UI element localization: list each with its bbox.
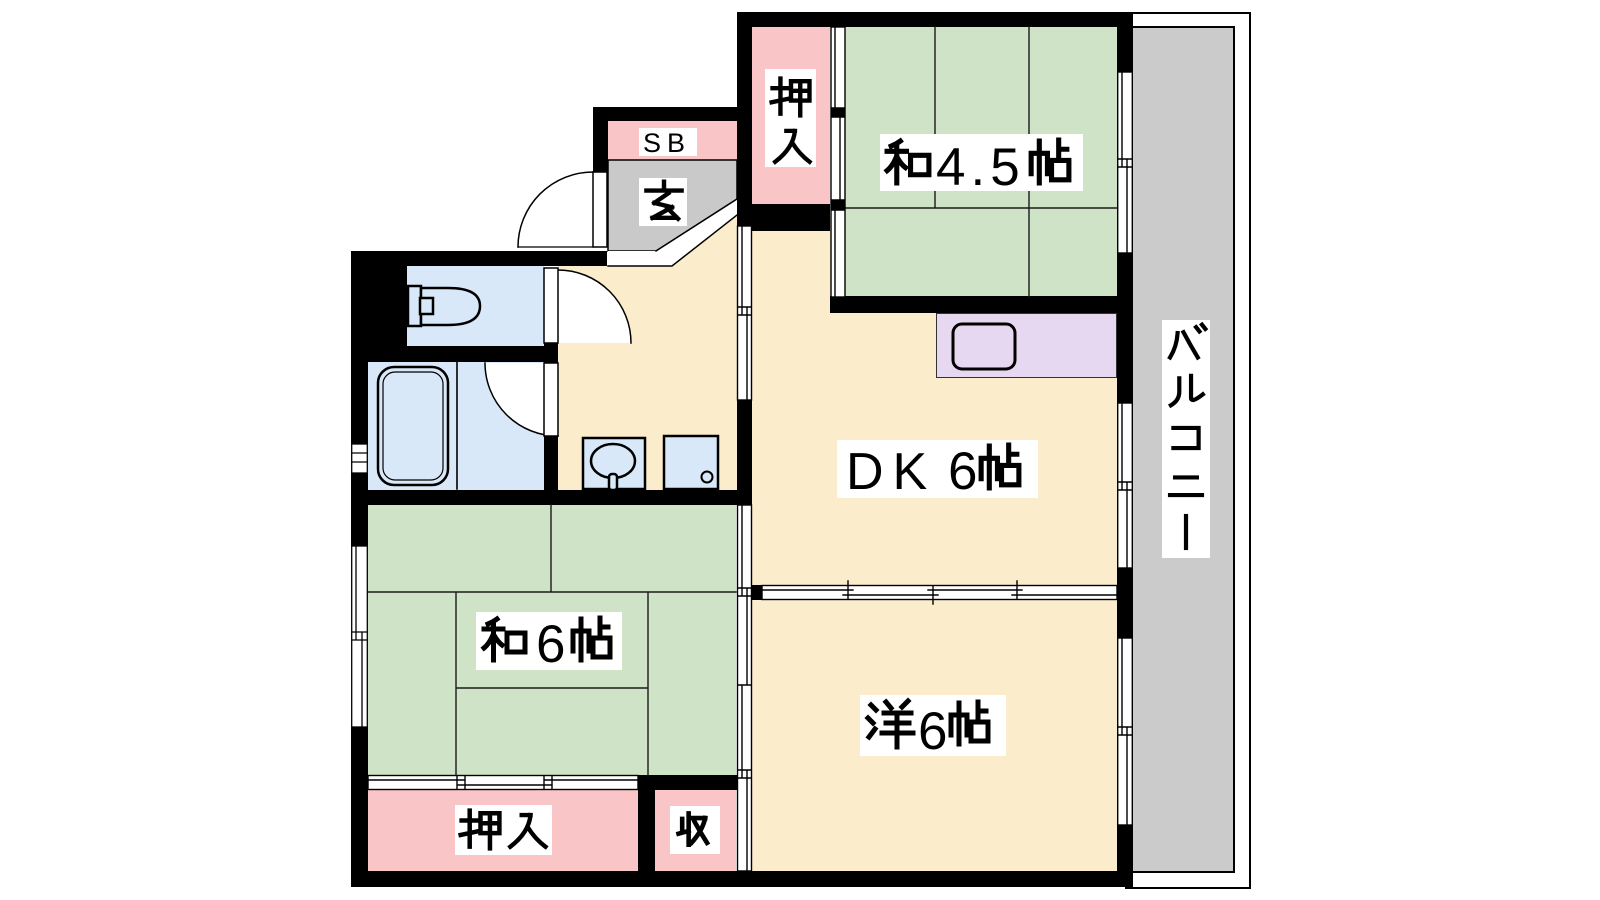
svg-text:DK: DK <box>846 443 936 501</box>
svg-text:4.5: 4.5 <box>936 138 1025 197</box>
svg-text:6: 6 <box>918 702 947 761</box>
svg-text:SB: SB <box>643 128 691 158</box>
svg-text:6: 6 <box>948 442 977 501</box>
svg-text:6: 6 <box>536 615 565 674</box>
